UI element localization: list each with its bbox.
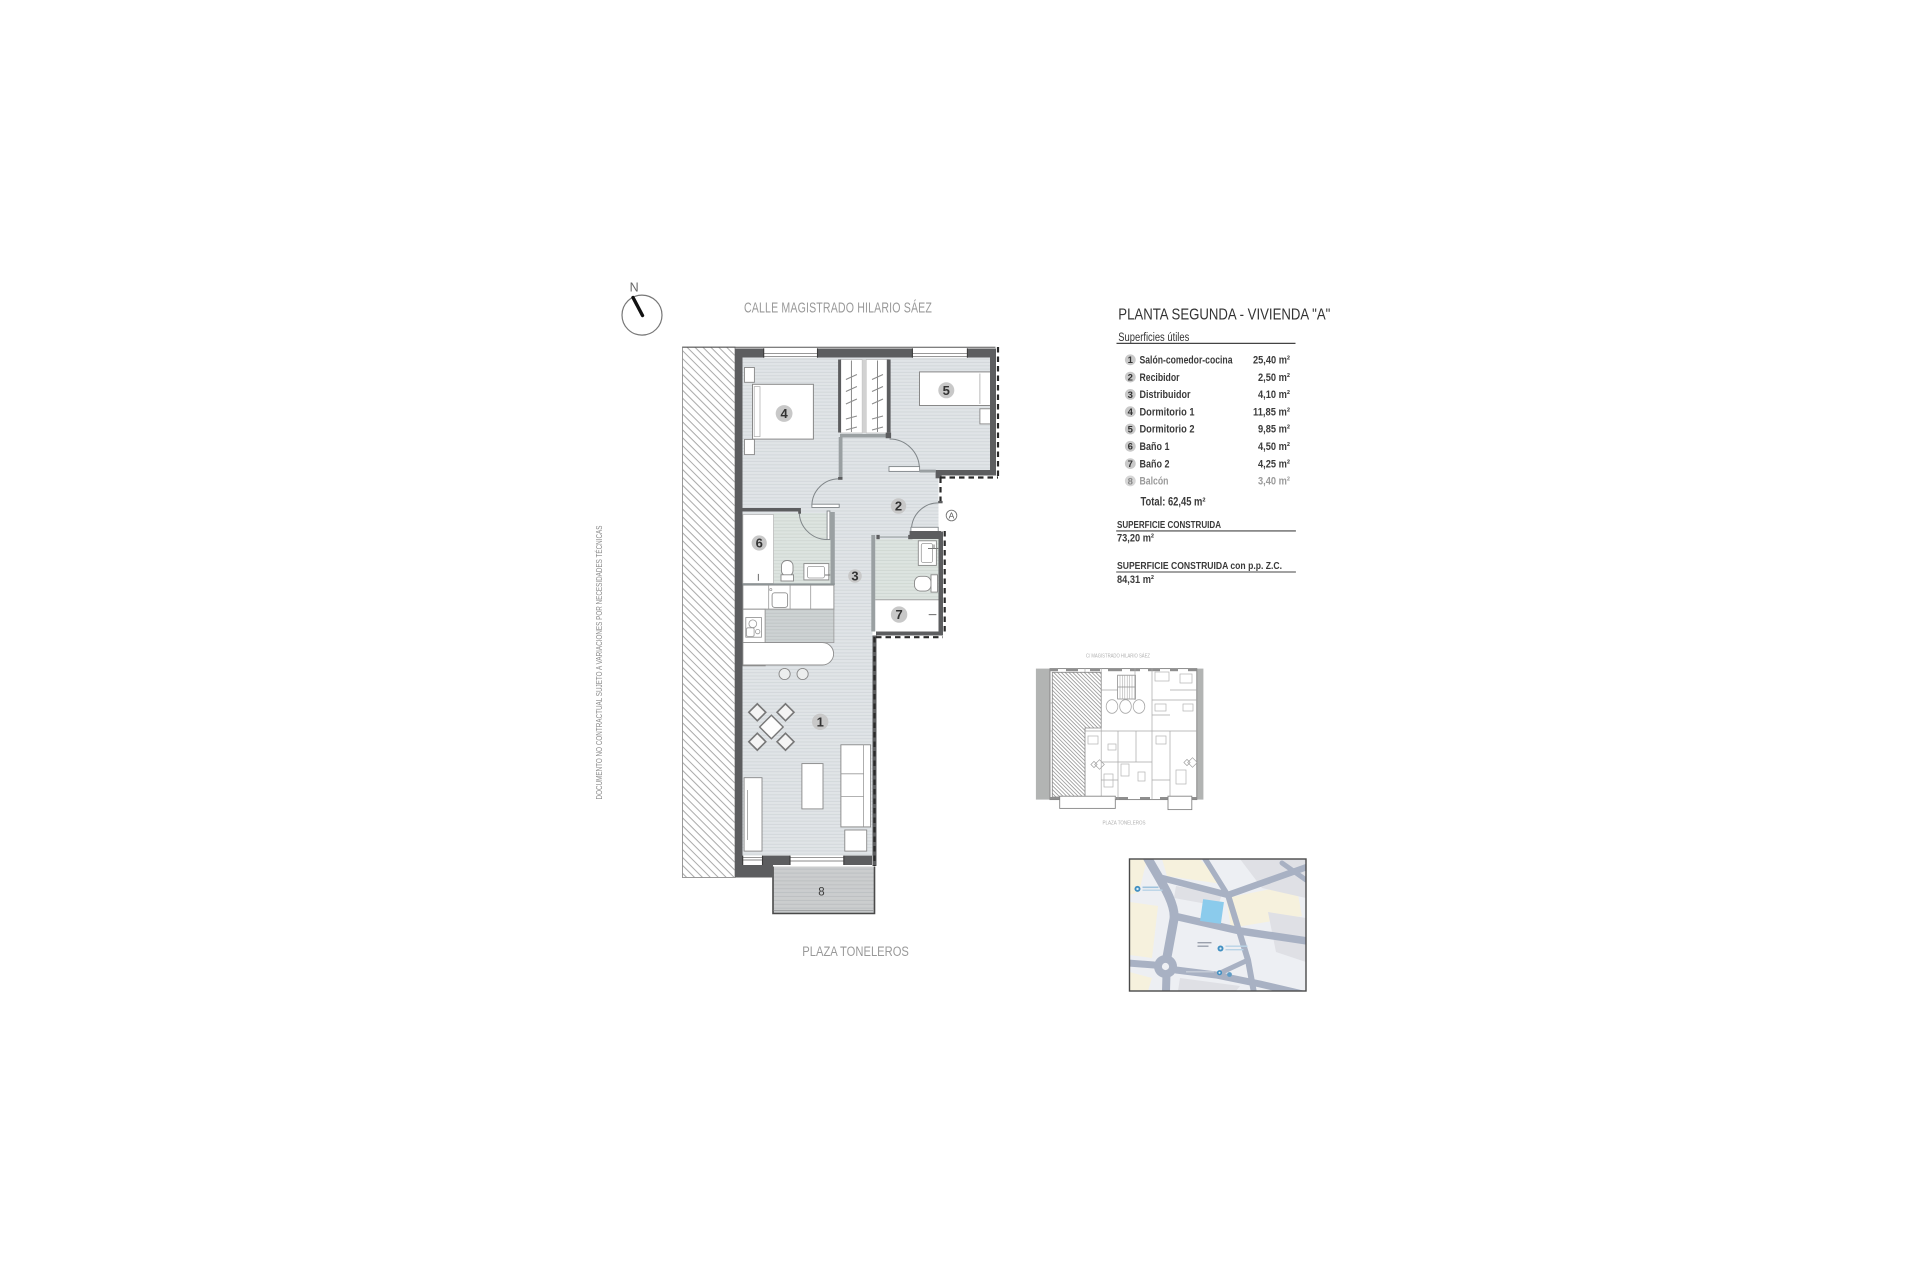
- svg-text:Superficies útiles: Superficies útiles: [1118, 330, 1189, 344]
- svg-text:5: 5: [943, 383, 950, 398]
- svg-text:2: 2: [1128, 373, 1133, 384]
- svg-text:7: 7: [895, 607, 902, 622]
- svg-text:C/ MAGISTRADO HILARIO SÁEZ: C/ MAGISTRADO HILARIO SÁEZ: [1086, 653, 1150, 660]
- svg-text:A: A: [949, 511, 955, 521]
- svg-text:PLAZA TONELEROS: PLAZA TONELEROS: [1103, 821, 1146, 827]
- svg-text:1: 1: [817, 714, 824, 729]
- svg-text:PLANTA SEGUNDA - VIVIENDA "A": PLANTA SEGUNDA - VIVIENDA "A": [1118, 307, 1330, 324]
- svg-text:84,31 m²: 84,31 m²: [1117, 574, 1154, 586]
- svg-text:Recibidor: Recibidor: [1140, 372, 1181, 384]
- svg-text:4,10 m²: 4,10 m²: [1258, 389, 1290, 401]
- svg-text:8: 8: [1128, 476, 1133, 487]
- svg-text:6: 6: [1128, 442, 1133, 453]
- svg-text:Salón-comedor-cocina: Salón-comedor-cocina: [1140, 355, 1234, 367]
- svg-text:Dormitorio 1: Dormitorio 1: [1140, 406, 1195, 418]
- svg-text:9,85 m²: 9,85 m²: [1258, 424, 1290, 436]
- svg-text:N: N: [630, 281, 639, 295]
- svg-text:Distribuidor: Distribuidor: [1140, 389, 1192, 401]
- svg-text:6: 6: [756, 536, 763, 551]
- svg-text:11,85 m²: 11,85 m²: [1253, 406, 1290, 418]
- svg-text:Total: 62,45 m²: Total: 62,45 m²: [1141, 497, 1206, 509]
- svg-text:4: 4: [780, 406, 788, 421]
- svg-text:PLAZA TONELEROS: PLAZA TONELEROS: [802, 944, 909, 959]
- svg-text:73,20 m²: 73,20 m²: [1117, 532, 1154, 544]
- svg-text:2: 2: [895, 499, 902, 514]
- svg-text:Dormitorio 2: Dormitorio 2: [1140, 424, 1195, 436]
- svg-text:Baño 1: Baño 1: [1140, 441, 1170, 453]
- svg-text:4: 4: [1128, 407, 1134, 418]
- svg-text:8: 8: [818, 887, 824, 899]
- svg-text:5: 5: [1128, 424, 1134, 435]
- svg-text:SUPERFICIE CONSTRUIDA con p.p: SUPERFICIE CONSTRUIDA con p.p. Z.C.: [1117, 560, 1282, 572]
- svg-text:7: 7: [1128, 459, 1133, 470]
- svg-text:4,50 m²: 4,50 m²: [1258, 441, 1290, 453]
- svg-text:3: 3: [1128, 390, 1133, 401]
- svg-text:1: 1: [1128, 355, 1134, 366]
- svg-text:2,50 m²: 2,50 m²: [1258, 372, 1290, 384]
- svg-text:Balcón: Balcón: [1140, 476, 1169, 488]
- svg-text:SUPERFICIE CONSTRUIDA: SUPERFICIE CONSTRUIDA: [1117, 519, 1221, 531]
- svg-text:Baño 2: Baño 2: [1140, 458, 1170, 470]
- svg-text:DOCUMENTO NO CONTRACTUAL SUJET: DOCUMENTO NO CONTRACTUAL SUJETO A VARIAC…: [595, 526, 604, 800]
- svg-text:CALLE MAGISTRADO HILARIO SÁEZ: CALLE MAGISTRADO HILARIO SÁEZ: [744, 300, 932, 317]
- svg-text:3: 3: [851, 569, 858, 584]
- svg-text:4,25 m²: 4,25 m²: [1258, 458, 1290, 470]
- svg-text:3,40 m²: 3,40 m²: [1258, 476, 1290, 488]
- svg-text:25,40 m²: 25,40 m²: [1253, 355, 1290, 367]
